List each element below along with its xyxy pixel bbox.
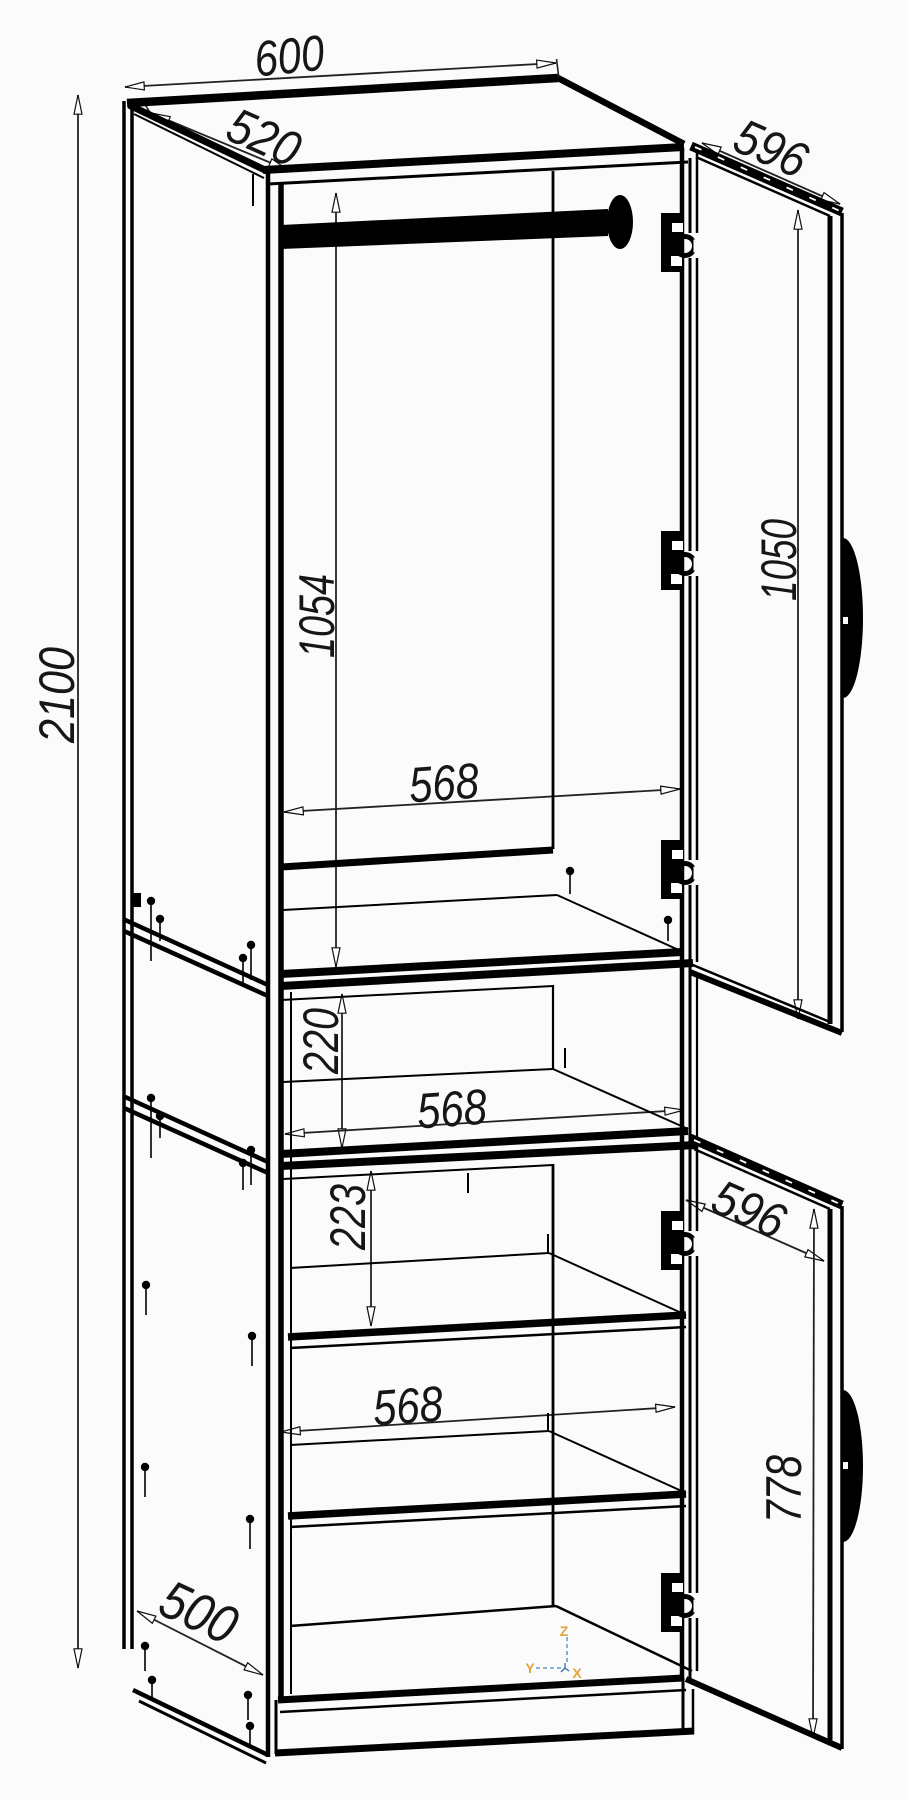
svg-text:Y: Y (525, 1660, 535, 1676)
svg-text:1054: 1054 (289, 574, 345, 658)
svg-text:568: 568 (371, 1376, 445, 1437)
svg-text:223: 223 (320, 1184, 376, 1251)
svg-text:568: 568 (407, 753, 481, 814)
svg-text:220: 220 (293, 1008, 349, 1075)
svg-text:Z: Z (560, 1623, 569, 1639)
svg-text:2100: 2100 (29, 647, 85, 744)
svg-text:X: X (572, 1665, 582, 1681)
svg-text:568: 568 (415, 1079, 489, 1140)
svg-text:600: 600 (251, 25, 327, 88)
svg-text:778: 778 (756, 1455, 812, 1523)
svg-text:1050: 1050 (751, 519, 807, 601)
